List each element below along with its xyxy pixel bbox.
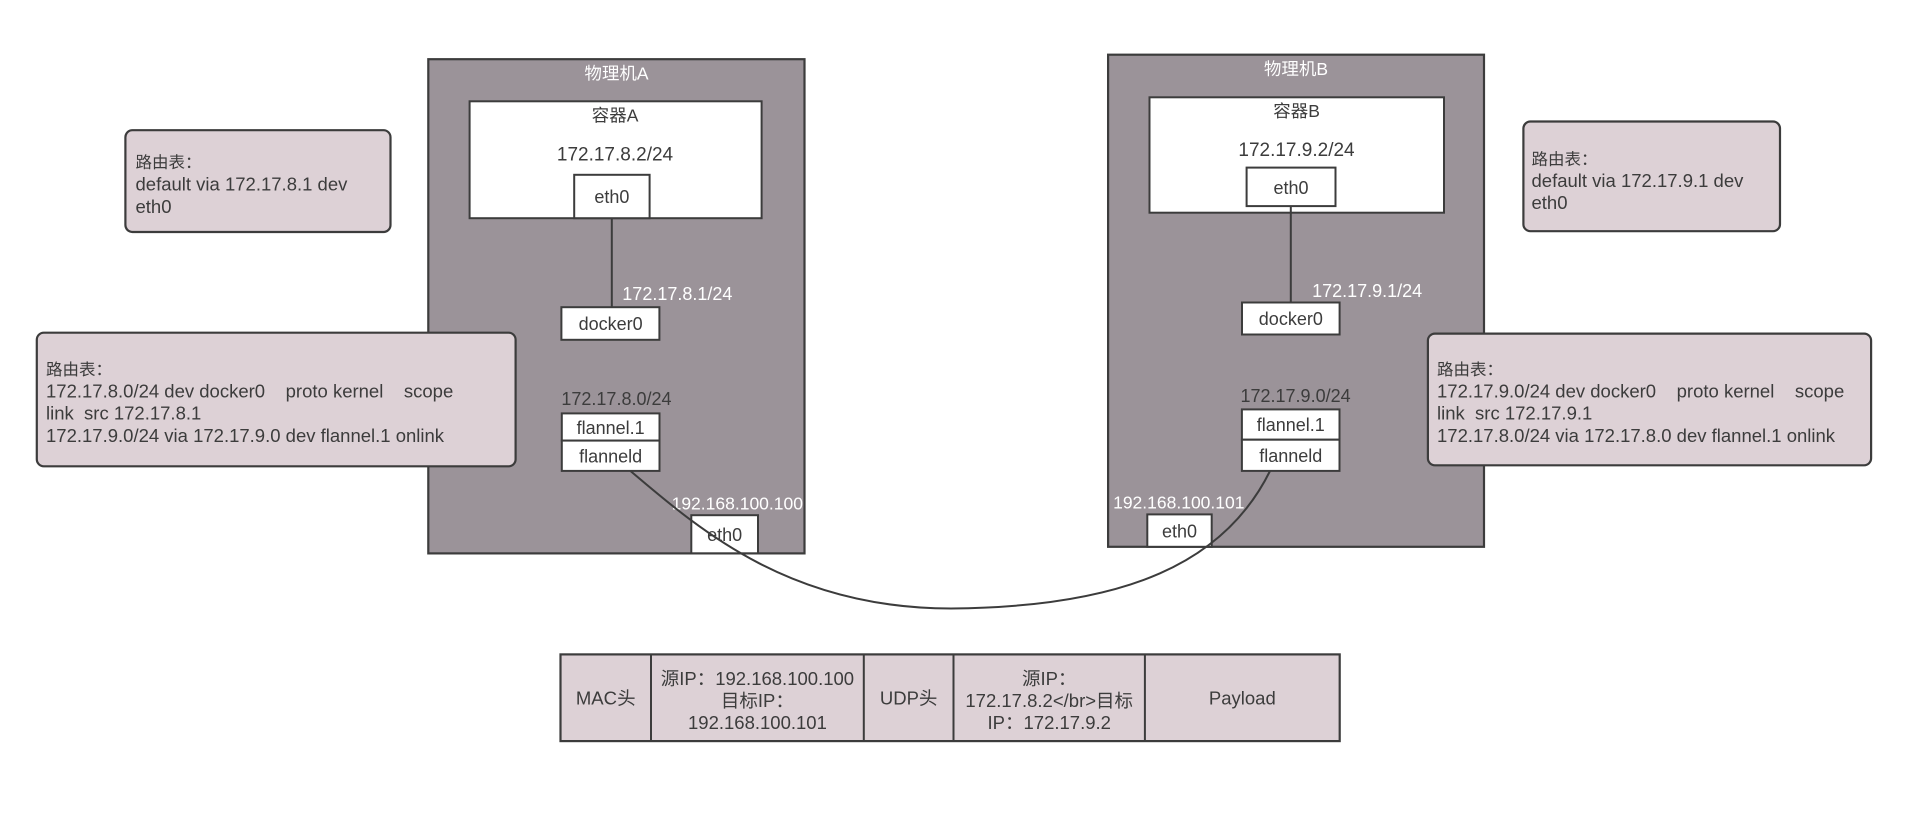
svg-text:IP: IP — [758, 690, 775, 711]
svg-text:link src 172.17.9.1: link src 172.17.9.1 — [1437, 403, 1592, 424]
svg-text:172.17.9.0/24 dev docker0 p: 172.17.9.0/24 dev docker0 proto kernel s… — [1437, 380, 1844, 401]
svg-text:172.17.8.2</br>: 172.17.8.2</br> — [965, 690, 1096, 711]
svg-text:default via 172.17.8.1 dev: default via 172.17.8.1 dev — [136, 173, 349, 194]
svg-text:docker0: docker0 — [579, 314, 643, 334]
svg-text:172.17.9.2: 172.17.9.2 — [1024, 712, 1111, 733]
svg-text:flannel.1: flannel.1 — [1257, 415, 1325, 435]
svg-text:eth0: eth0 — [1274, 178, 1309, 198]
svg-text:IP: IP — [679, 668, 696, 689]
svg-text:192.168.100.101: 192.168.100.101 — [1113, 493, 1244, 513]
svg-text:Payload: Payload — [1209, 688, 1276, 709]
svg-text:eth0: eth0 — [1532, 192, 1568, 213]
svg-text:flanneld: flanneld — [579, 447, 642, 467]
svg-text:eth0: eth0 — [594, 187, 629, 207]
svg-text:B: B — [1316, 59, 1328, 79]
svg-text:flanneld: flanneld — [1259, 446, 1322, 466]
svg-text:172.17.9.1/24: 172.17.9.1/24 — [1312, 281, 1422, 301]
svg-text:eth0: eth0 — [136, 196, 172, 217]
svg-text:172.17.8.1/24: 172.17.8.1/24 — [622, 284, 732, 304]
svg-text:172.17.9.0/24: 172.17.9.0/24 — [1241, 386, 1351, 406]
svg-text:192.168.100.100: 192.168.100.100 — [672, 493, 804, 513]
svg-text:UDP: UDP — [880, 688, 919, 709]
svg-text:172.17.9.0/24 via 172.17.9.0 d: 172.17.9.0/24 via 172.17.9.0 dev flannel… — [46, 425, 445, 446]
svg-text:192.168.100.101: 192.168.100.101 — [688, 712, 827, 733]
svg-text:link src 172.17.8.1: link src 172.17.8.1 — [46, 403, 201, 424]
svg-text:eth0: eth0 — [1162, 521, 1197, 541]
svg-text:IP: IP — [988, 712, 1005, 733]
svg-text:IP: IP — [1041, 668, 1058, 689]
svg-text:192.168.100.100: 192.168.100.100 — [715, 668, 854, 689]
svg-text:MAC: MAC — [576, 688, 617, 709]
svg-text:docker0: docker0 — [1259, 309, 1323, 329]
svg-text:172.17.8.0/24 dev docker0 p: 172.17.8.0/24 dev docker0 proto kernel s… — [46, 380, 453, 401]
svg-text:172.17.8.0/24 via 172.17.8.0 d: 172.17.8.0/24 via 172.17.8.0 dev flannel… — [1437, 425, 1836, 446]
svg-text:A: A — [637, 63, 649, 83]
svg-text:172.17.8.0/24: 172.17.8.0/24 — [561, 389, 671, 409]
svg-text:B: B — [1308, 101, 1320, 121]
svg-text:172.17.8.2/24: 172.17.8.2/24 — [557, 145, 674, 166]
svg-text:172.17.9.2/24: 172.17.9.2/24 — [1238, 140, 1355, 161]
svg-text:A: A — [627, 105, 639, 125]
svg-text:default via 172.17.9.1 dev: default via 172.17.9.1 dev — [1532, 170, 1745, 191]
svg-text:flannel.1: flannel.1 — [577, 418, 645, 438]
